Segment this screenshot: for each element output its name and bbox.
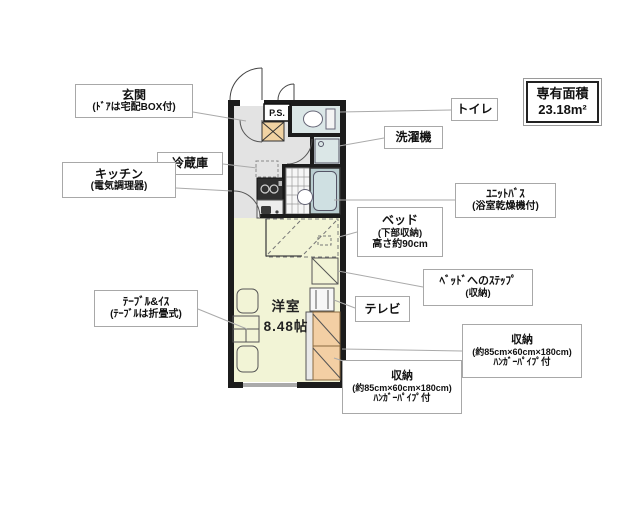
bed-label: ベッド (下部収納) 高さ約90cm: [357, 207, 443, 257]
delivery-box-icon: [262, 122, 284, 141]
exterior-door-swing-icon: [230, 68, 294, 100]
washer-area-floor: [314, 137, 340, 164]
washer-label: 洗濯機: [384, 126, 443, 149]
toilet-label: トイレ: [451, 98, 498, 121]
entrance-label-title: 玄関: [122, 88, 146, 102]
toilet-room-wall-bottom: [288, 133, 340, 137]
tv-stand-icon: [310, 288, 334, 311]
storage-bottom-label: 収納 (約85cm×60cm×180cm) ﾊﾝｶﾞｰﾊﾟｲﾌﾟ付: [342, 360, 462, 414]
bed-step-label: ﾍﾞｯﾄﾞへのｽﾃｯﾌﾟ (収納): [423, 269, 533, 306]
pipe-space-label: P.S.: [269, 108, 285, 118]
exclusive-area-title: 専有面積: [536, 86, 588, 102]
exclusive-area-box: 専有面積 23.18m²: [523, 78, 602, 126]
tv-label: テレビ: [355, 296, 410, 322]
table-label: ﾃｰﾌﾞﾙ&ｲｽ (ﾃｰﾌﾞﾙは折畳式): [94, 290, 198, 327]
window-icon: [243, 382, 297, 388]
entrance-label: 玄関 (ﾄﾞｱは宅配BOX付): [75, 84, 193, 118]
floorplan-drawing: P.S.: [0, 0, 640, 512]
kitchen-label: キッチン (電気調理器): [62, 162, 176, 198]
exclusive-area-value: 23.18m²: [538, 102, 586, 118]
floorplan-page: P.S.: [0, 0, 640, 512]
unit-bath-label: ﾕﾆｯﾄﾊﾞｽ (浴室乾燥機付): [455, 183, 556, 218]
toilet-room-wall-left: [288, 106, 292, 137]
bathtub-icon: [310, 168, 340, 214]
room-name-text: 洋室: [272, 298, 301, 314]
entrance-doorway: [240, 100, 264, 106]
stove-icon: [257, 178, 283, 200]
room-size-text: 8.48帖: [264, 318, 309, 334]
storage-closet-icon: [306, 312, 340, 380]
bath-basin-icon: [298, 190, 313, 205]
room-divider-wall: [260, 214, 340, 218]
entrance-label-sub: (ﾄﾞｱは宅配BOX付): [92, 102, 175, 114]
storage-right-label: 収納 (約85cm×60cm×180cm) ﾊﾝｶﾞｰﾊﾟｲﾌﾟ付: [462, 324, 582, 378]
